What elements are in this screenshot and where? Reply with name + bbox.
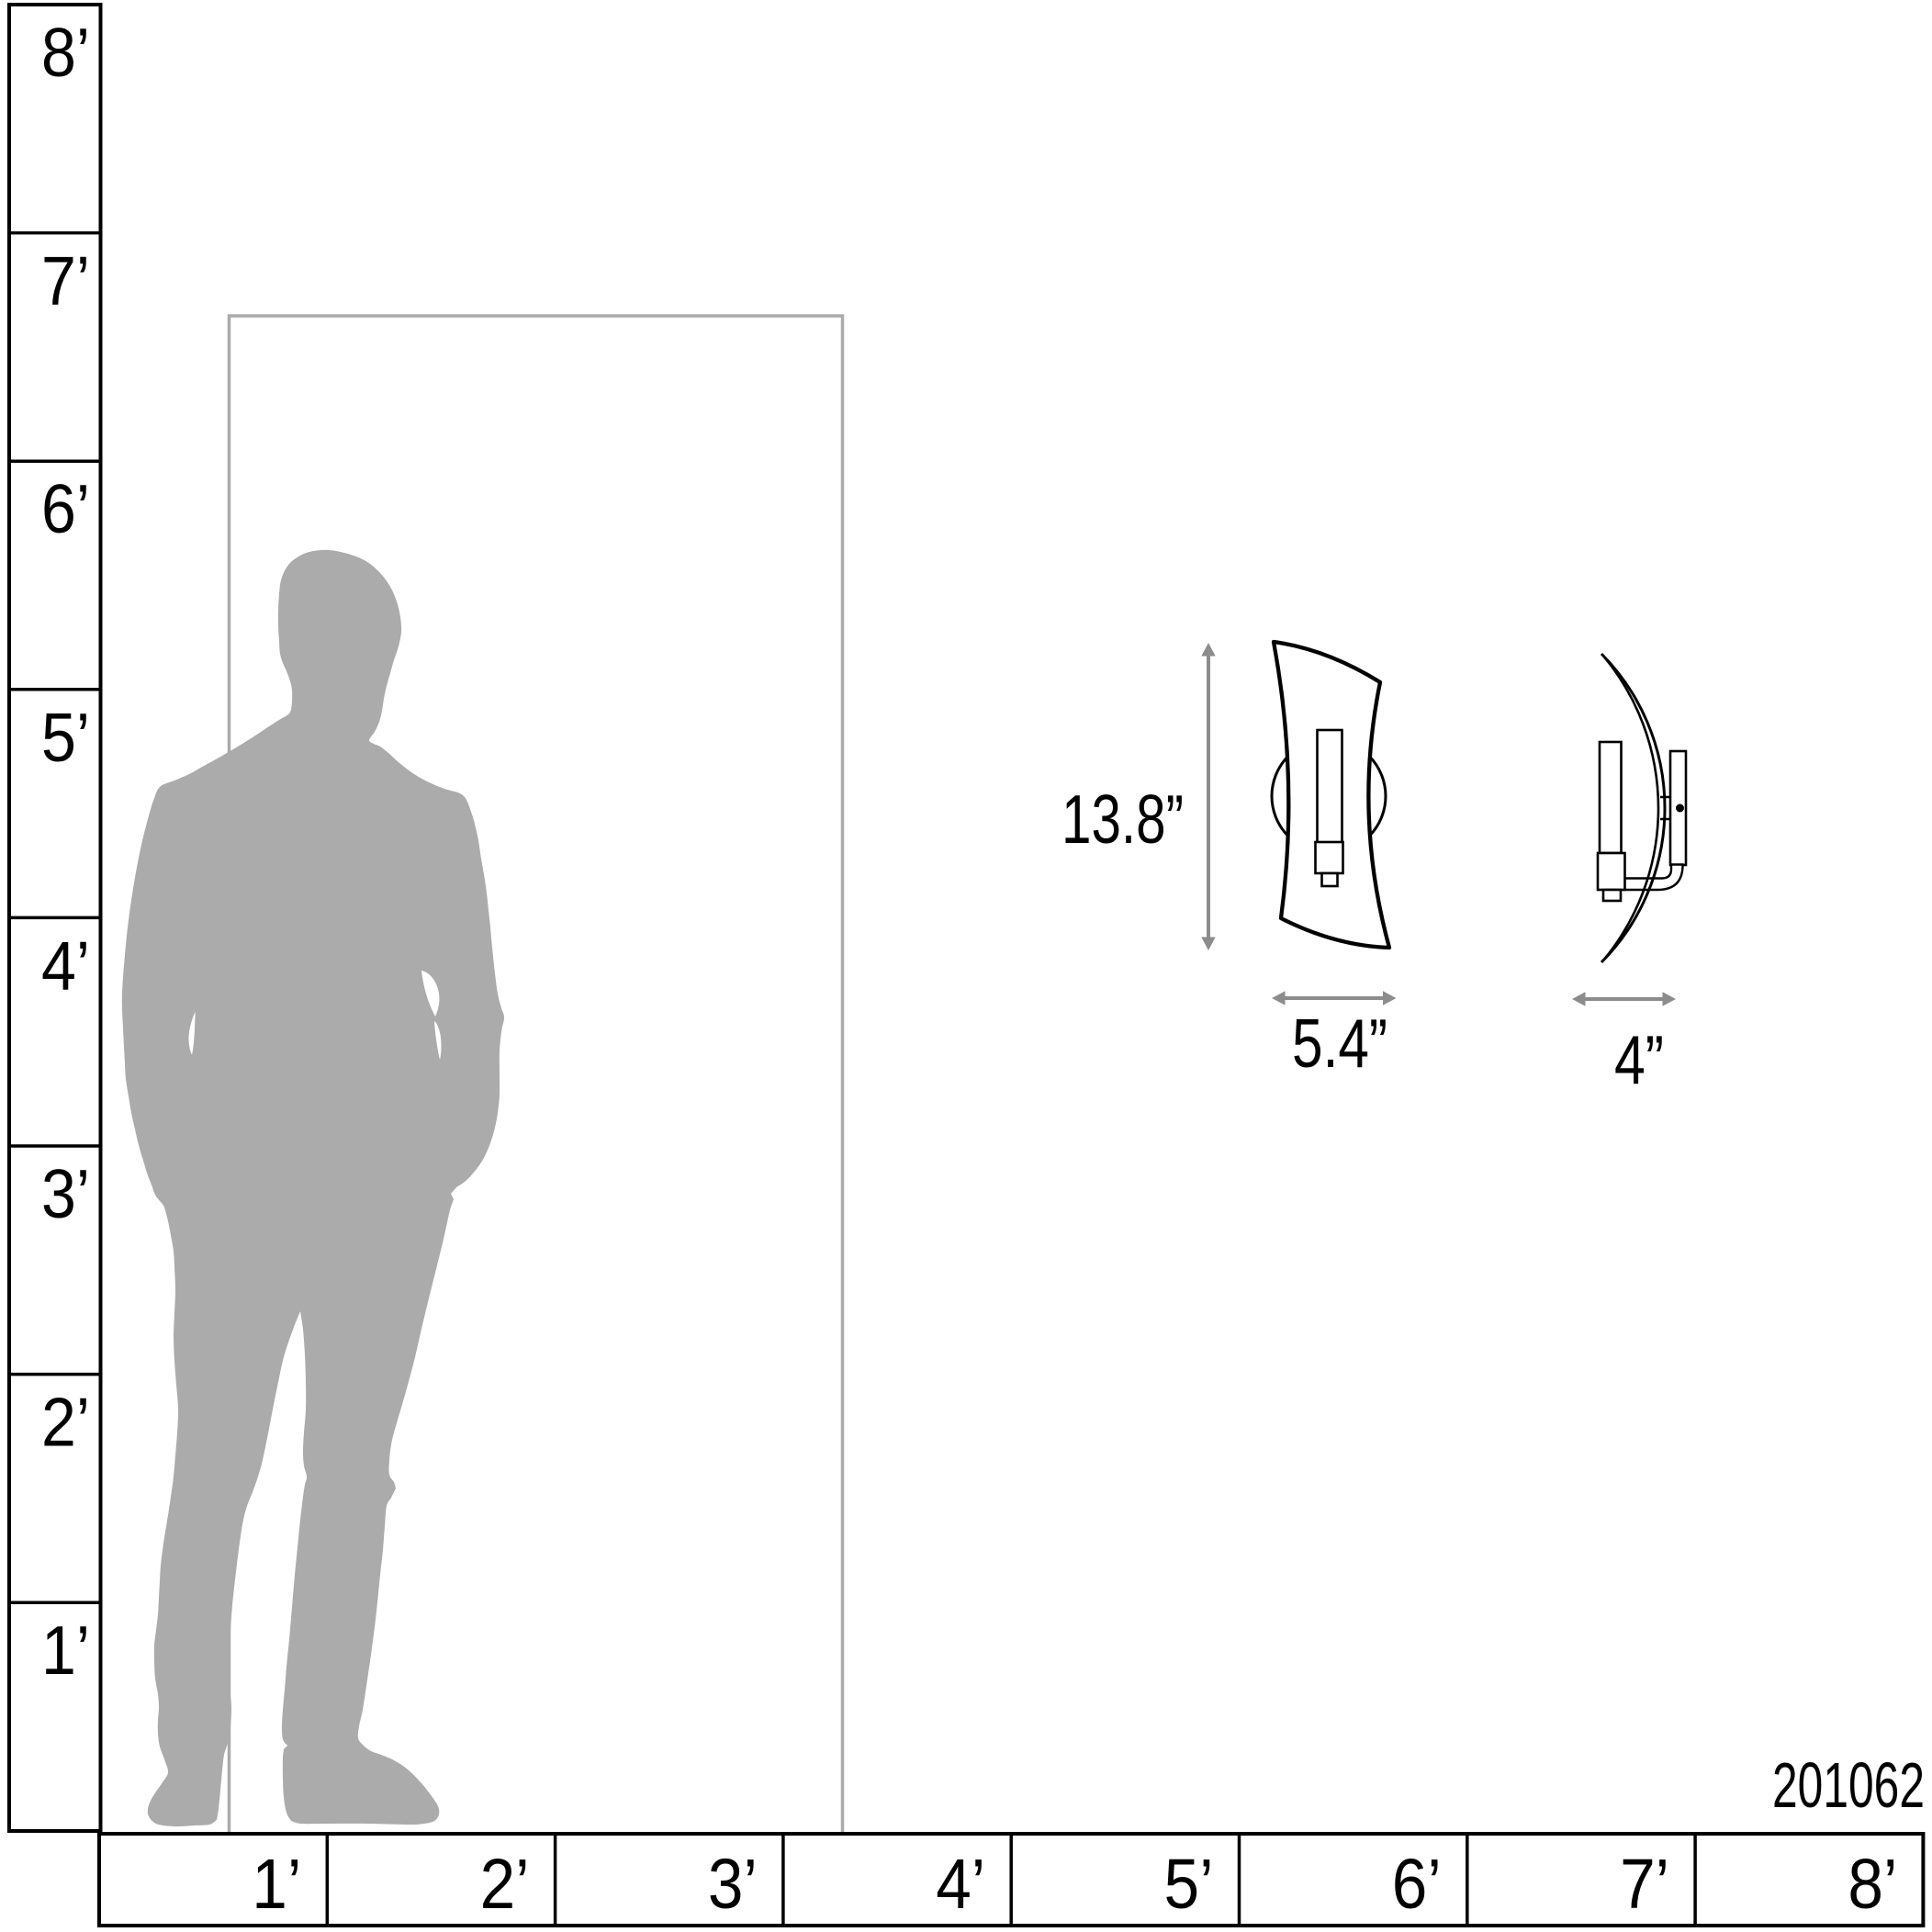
svg-text:6’: 6’	[1392, 1845, 1442, 1924]
svg-text:3’: 3’	[41, 1155, 90, 1232]
svg-text:8’: 8’	[1848, 1845, 1897, 1924]
svg-text:8’: 8’	[41, 14, 90, 91]
svg-text:1’: 1’	[252, 1845, 301, 1924]
svg-text:3’: 3’	[708, 1845, 758, 1924]
svg-text:5.4”: 5.4”	[1292, 1005, 1387, 1082]
svg-text:5’: 5’	[41, 699, 90, 776]
svg-text:7’: 7’	[41, 242, 90, 320]
svg-text:7’: 7’	[1620, 1845, 1669, 1924]
svg-text:4’: 4’	[41, 927, 90, 1004]
svg-text:13.8”: 13.8”	[1061, 781, 1184, 858]
svg-text:1’: 1’	[41, 1612, 90, 1689]
svg-text:2’: 2’	[41, 1384, 90, 1461]
svg-text:6’: 6’	[41, 470, 90, 547]
svg-text:2’: 2’	[480, 1845, 530, 1924]
svg-text:4”: 4”	[1614, 1021, 1664, 1098]
svg-text:5’: 5’	[1164, 1845, 1214, 1924]
svg-text:4’: 4’	[936, 1845, 985, 1924]
svg-text:201062: 201062	[1772, 1749, 1925, 1821]
